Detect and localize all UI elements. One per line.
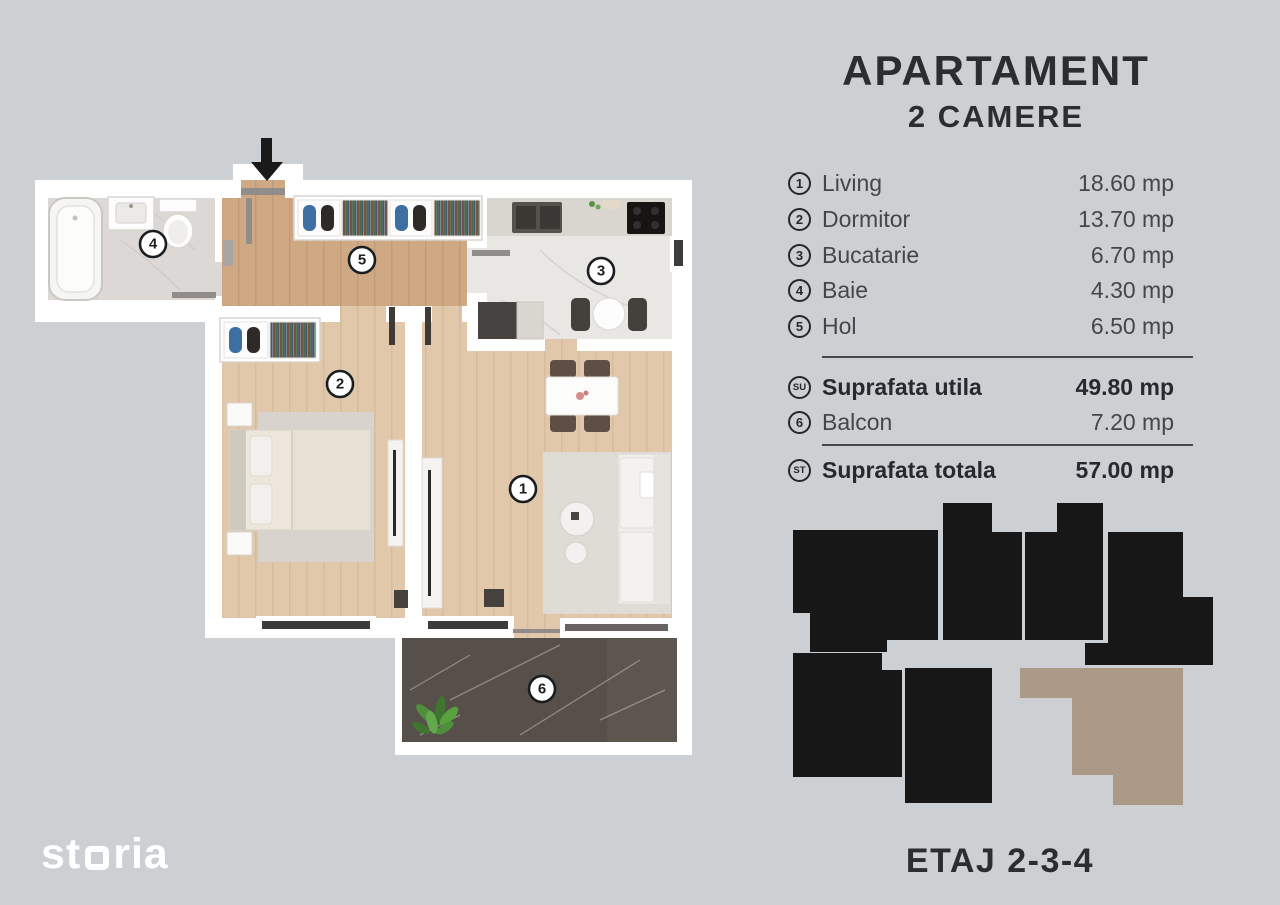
bathroom-sink	[108, 197, 154, 230]
stove	[627, 202, 665, 234]
bedroom-wardrobe	[220, 318, 320, 362]
balcon-tile	[607, 633, 677, 742]
bathtub	[49, 198, 102, 300]
balcon-label: Balcon	[822, 409, 892, 436]
building-unit	[1025, 503, 1103, 640]
building-position-diagram	[780, 500, 1225, 810]
radiator-bedroom	[394, 590, 408, 608]
kitchen-table	[571, 298, 647, 331]
plan-badge-bucatarie: 3	[588, 258, 614, 284]
legend-badge-5: 5	[788, 315, 811, 338]
building-unit-highlighted	[1020, 668, 1183, 805]
legend-area: 4.30 mp	[1091, 277, 1174, 304]
radiator-living	[484, 589, 504, 607]
su-label: Suprafata utila	[822, 374, 982, 401]
tv-panel-living	[422, 458, 442, 608]
balcon-row: 6 Balcon 7.20 mp	[788, 406, 1174, 438]
page-title: APARTAMENT 2 CAMERE	[780, 50, 1212, 132]
legend-badge-6: 6	[788, 411, 811, 434]
building-unit	[793, 530, 938, 652]
legend-row-dormitor: 2 Dormitor 13.70 mp	[788, 202, 1174, 238]
svg-text:4: 4	[149, 236, 158, 253]
legend-badge-2: 2	[788, 208, 811, 231]
hall-wardrobe	[294, 196, 482, 240]
st-area: 57.00 mp	[1076, 457, 1174, 484]
storia-logo: st ria	[41, 833, 169, 876]
legend-row-living: 1 Living 18.60 mp	[788, 166, 1174, 202]
legend-row-hol: 5 Hol 6.50 mp	[788, 309, 1174, 345]
logo-text-st: st	[41, 833, 81, 876]
room-legend: 1 Living 18.60 mp 2 Dormitor 13.70 mp 3 …	[788, 166, 1174, 344]
svg-text:3: 3	[597, 263, 605, 280]
building-unit	[905, 668, 992, 803]
kitchen-counter	[487, 198, 672, 236]
legend-area: 6.50 mp	[1091, 313, 1174, 340]
legend-row-baie: 4 Baie 4.30 mp	[788, 273, 1174, 309]
svg-text:6: 6	[538, 681, 546, 698]
legend-area: 13.70 mp	[1078, 206, 1174, 233]
svg-text:1: 1	[519, 481, 527, 498]
kitchen-lower-cabinets	[478, 302, 543, 339]
suprafata-totala-row: ST Suprafata totala 57.00 mp	[788, 454, 1174, 486]
living-window	[428, 621, 508, 629]
legend-name: Hol	[822, 313, 857, 340]
legend-badge-1: 1	[788, 172, 811, 195]
building-unit	[793, 653, 902, 777]
title-line2: 2 CAMERE	[780, 101, 1212, 132]
legend-name: Dormitor	[822, 206, 910, 233]
su-area: 49.80 mp	[1076, 374, 1174, 401]
legend-row-bucatarie: 3 Bucatarie 6.70 mp	[788, 237, 1174, 273]
logo-text-ria: ria	[113, 833, 169, 876]
plan-badge-baie: 4	[140, 231, 166, 257]
floor-label: ETAJ 2-3-4	[780, 842, 1220, 881]
plan-badge-hol: 5	[349, 247, 375, 273]
separator-2	[822, 444, 1193, 446]
st-label: Suprafata totala	[822, 457, 996, 484]
plan-badge-living: 1	[510, 476, 536, 502]
dormitor-window	[262, 621, 370, 629]
legend-badge-4: 4	[788, 279, 811, 302]
radiator-hall	[223, 240, 233, 266]
svg-text:5: 5	[358, 252, 366, 269]
legend-name: Living	[822, 170, 882, 197]
suprafata-utila-row: SU Suprafata utila 49.80 mp	[788, 371, 1174, 403]
legend-area: 6.70 mp	[1091, 242, 1174, 269]
su-badge: SU	[788, 376, 811, 399]
balcony-sill	[565, 624, 668, 631]
logo-square-o-icon	[85, 846, 109, 870]
title-line1: APARTAMENT	[780, 50, 1212, 92]
legend-area: 18.60 mp	[1078, 170, 1174, 197]
legend-badge-3: 3	[788, 244, 811, 267]
legend-name: Baie	[822, 277, 868, 304]
plan-badge-balcon: 6	[529, 676, 555, 702]
sofa	[543, 452, 671, 614]
building-unit	[1085, 532, 1213, 665]
separator-1	[822, 356, 1193, 358]
bucatarie-window	[674, 240, 683, 266]
st-badge: ST	[788, 459, 811, 482]
plan-badge-dormitor: 2	[327, 371, 353, 397]
building-unit	[943, 503, 1022, 640]
svg-text:2: 2	[336, 376, 344, 393]
legend-name: Bucatarie	[822, 242, 919, 269]
tv-panel-bedroom	[388, 440, 403, 546]
balcon-area: 7.20 mp	[1091, 409, 1174, 436]
